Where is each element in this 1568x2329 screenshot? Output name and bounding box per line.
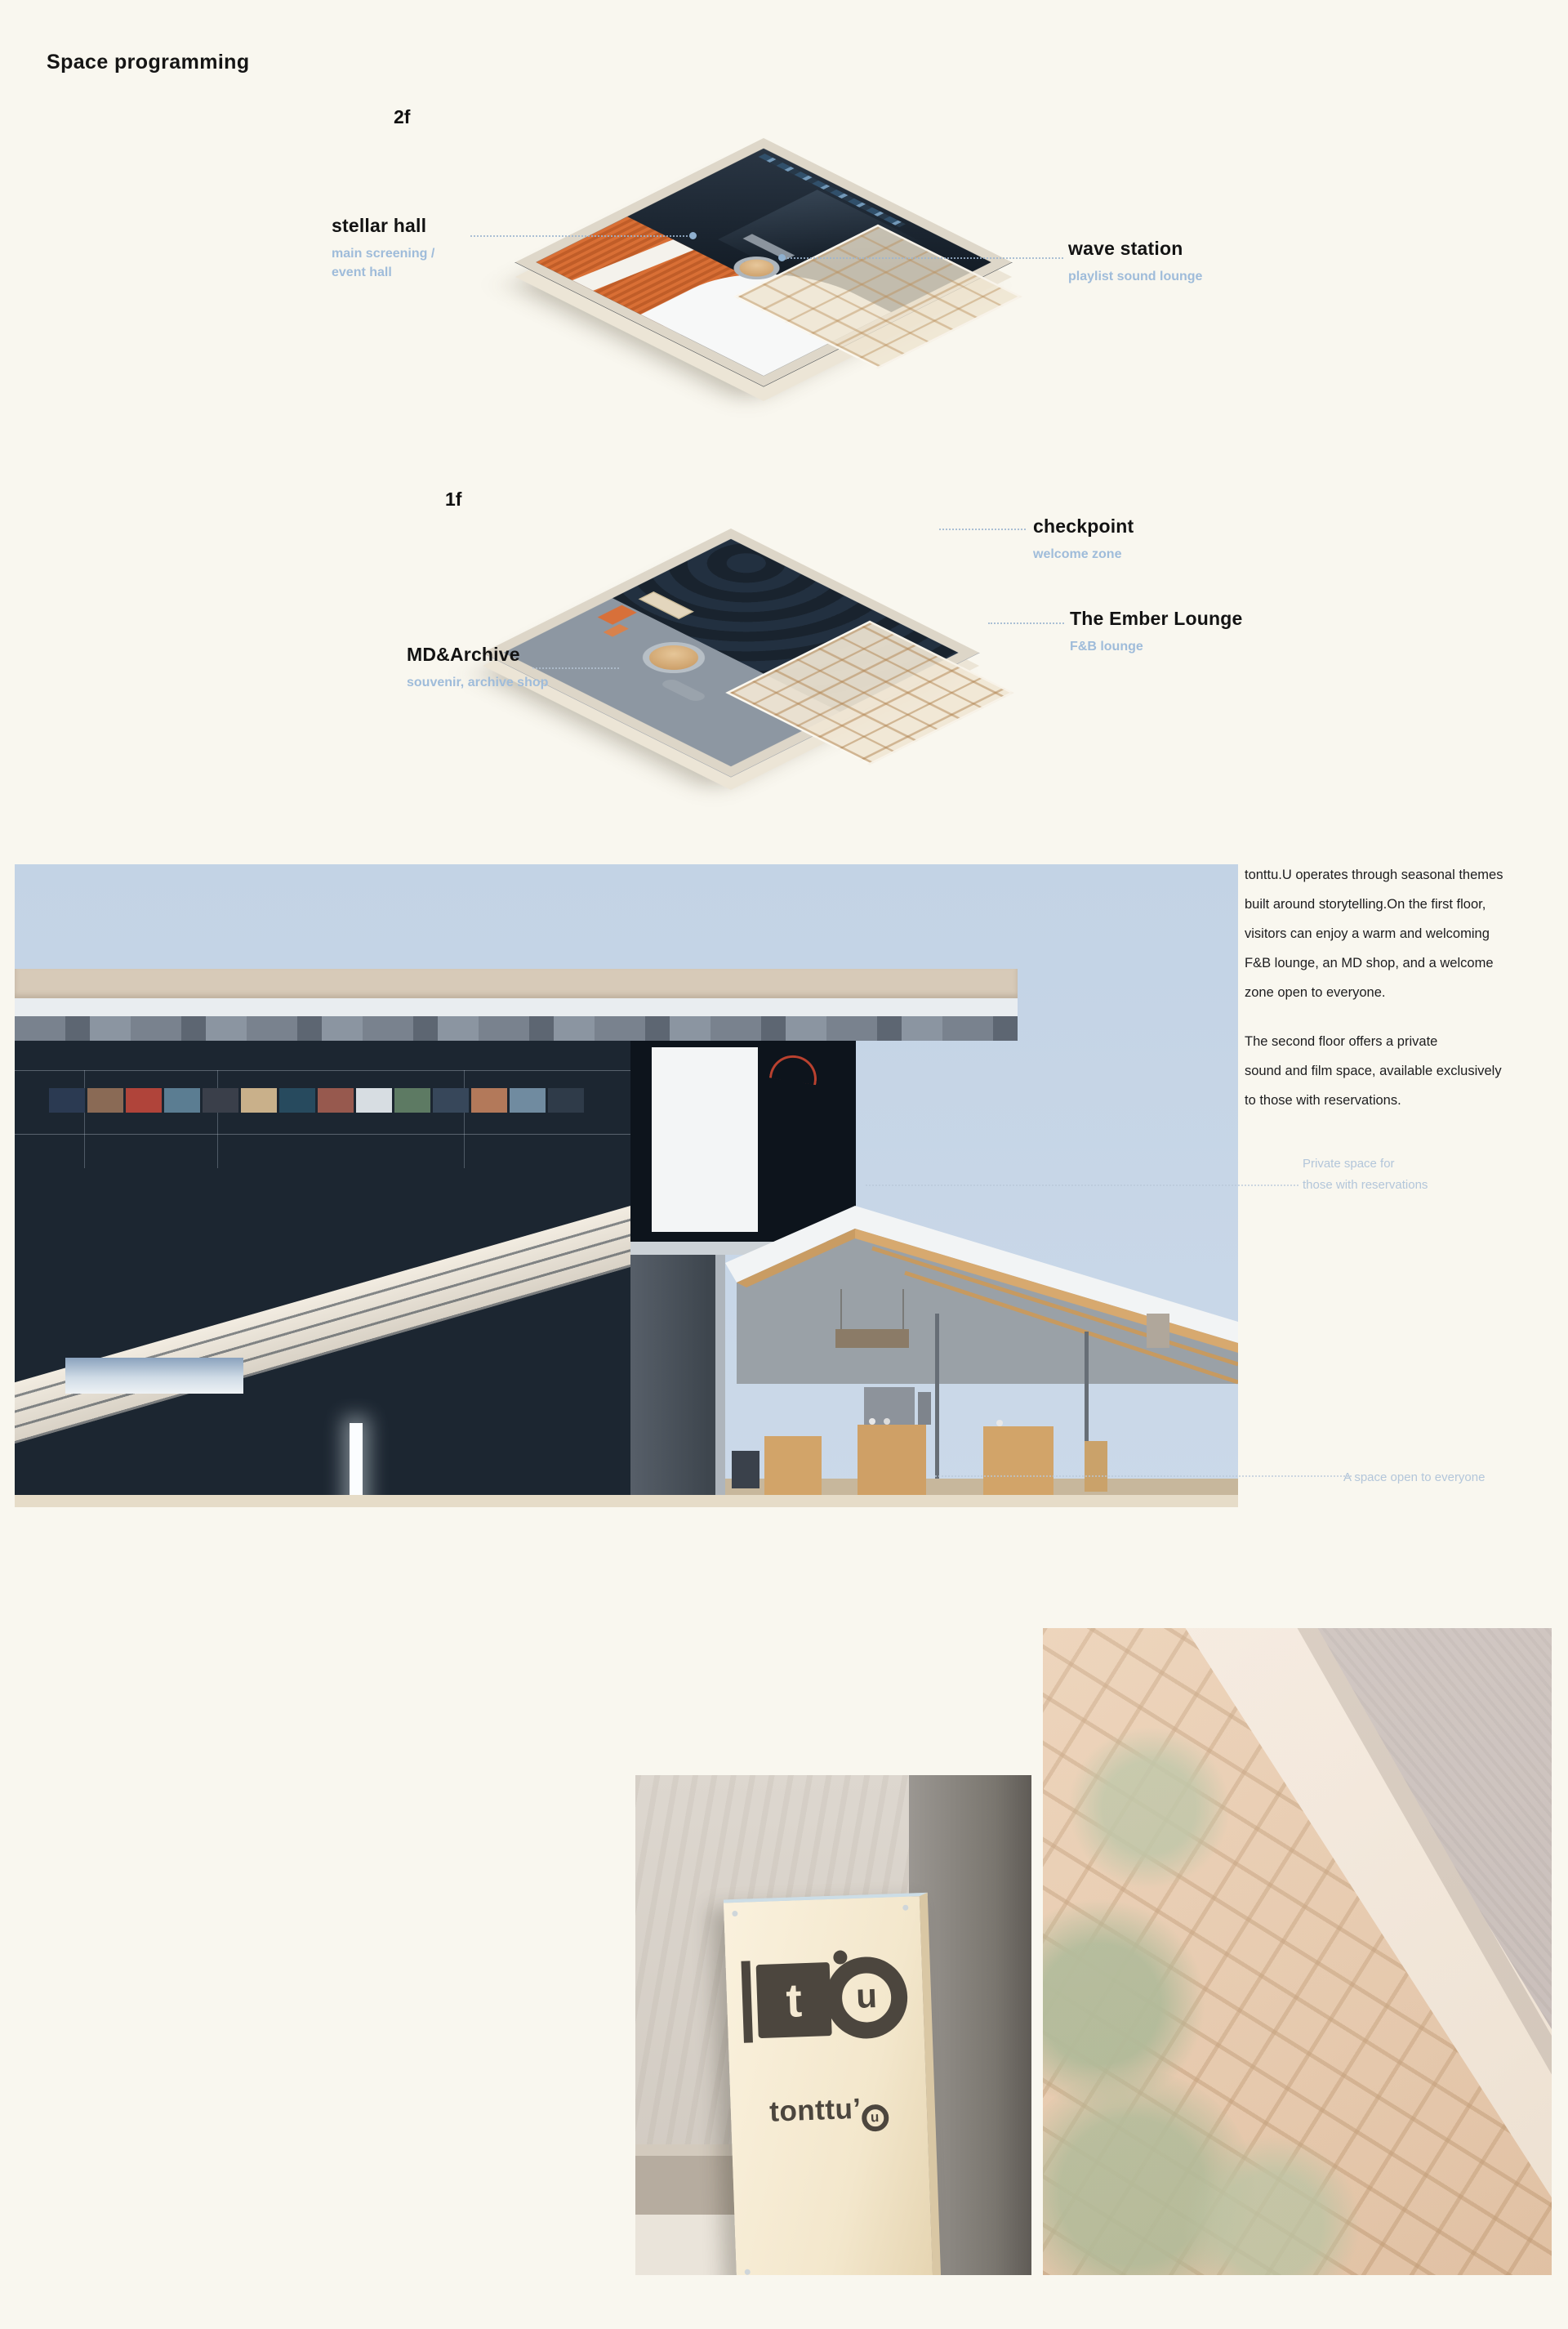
poster-tile — [279, 1088, 315, 1113]
room-desc: main screening / event hall — [332, 244, 434, 282]
aerial-photo — [1043, 1628, 1552, 2275]
leader-checkpoint — [939, 529, 1026, 530]
brand-logo-mark: t u — [725, 1955, 924, 2043]
poster-tile — [433, 1088, 469, 1113]
label-wave-station: wave station playlist sound lounge — [1068, 238, 1202, 286]
poster-tile — [49, 1088, 85, 1113]
room-name: MD&Archive — [407, 644, 548, 666]
axon-1f-bench — [659, 678, 709, 703]
poster-tile — [548, 1088, 584, 1113]
room-name: wave station — [1068, 238, 1202, 260]
room-name: stellar hall — [332, 215, 434, 237]
section-cafe — [627, 1191, 1238, 1495]
poster-tile — [318, 1088, 354, 1113]
axon-2f — [502, 96, 1041, 456]
section-ground-slab — [15, 1495, 1238, 1507]
annotation-private-space: Private space for those with reservation… — [1303, 1153, 1428, 1196]
label-md-archive: MD&Archive souvenir, archive shop — [407, 644, 548, 692]
leader-private-space — [866, 1185, 1298, 1186]
label-checkpoint: checkpoint welcome zone — [1033, 515, 1134, 564]
intro-paragraph-1: tonttu.U operates through seasonal theme… — [1245, 860, 1555, 1007]
section-screening-hall — [15, 1041, 645, 1495]
red-cable — [769, 1052, 820, 1086]
room-desc: welcome zone — [1033, 545, 1134, 564]
poster-tile — [471, 1088, 507, 1113]
poster-tile — [356, 1088, 392, 1113]
room-name: checkpoint — [1033, 515, 1134, 538]
label-ember-lounge: The Ember Lounge F&B lounge — [1070, 608, 1243, 656]
poster-tile — [164, 1088, 200, 1113]
room-desc: F&B lounge — [1070, 637, 1243, 656]
leader-dot-wave — [778, 254, 786, 261]
poster-tile — [241, 1088, 277, 1113]
section-roof-slab — [15, 969, 1018, 998]
leader-stellar-hall — [470, 235, 691, 237]
room-desc: playlist sound lounge — [1068, 267, 1202, 286]
poster-strip — [49, 1088, 584, 1113]
poster-tile — [126, 1088, 162, 1113]
section-cloud-screen — [65, 1358, 243, 1394]
leader-ember-lounge — [988, 622, 1064, 624]
sign-lightbox: t u tonttu’u — [724, 1893, 941, 2275]
room-name: The Ember Lounge — [1070, 608, 1243, 630]
poster-tile — [203, 1088, 238, 1113]
leader-dot-stellar — [689, 232, 697, 239]
label-stellar-hall: stellar hall main screening / event hall — [332, 215, 434, 282]
brand-wordmark: tonttu’u — [730, 2090, 928, 2136]
leader-wave-station — [784, 257, 1063, 259]
room-desc: souvenir, archive shop — [407, 673, 548, 692]
poster-tile — [394, 1088, 430, 1113]
axon-1f — [478, 480, 1033, 840]
page-title: Space programming — [47, 51, 250, 74]
intro-paragraph-2: The second floor offers a private sound … — [1245, 1027, 1555, 1115]
poster-tile — [87, 1088, 123, 1113]
section-ramp — [15, 1201, 662, 1449]
annotation-open-space: A space open to everyone — [1343, 1467, 1485, 1488]
page: Space programming 2f 1f — [0, 0, 1568, 2329]
leader-md-archive — [532, 667, 619, 669]
floor-tag-1f: 1f — [445, 489, 461, 511]
leader-open-space — [935, 1475, 1352, 1477]
floor-tag-2f: 2f — [394, 106, 410, 128]
poster-tile — [510, 1088, 546, 1113]
section-clerestory — [15, 1016, 1018, 1041]
sign-photo: t u tonttu’u — [635, 1775, 1031, 2275]
